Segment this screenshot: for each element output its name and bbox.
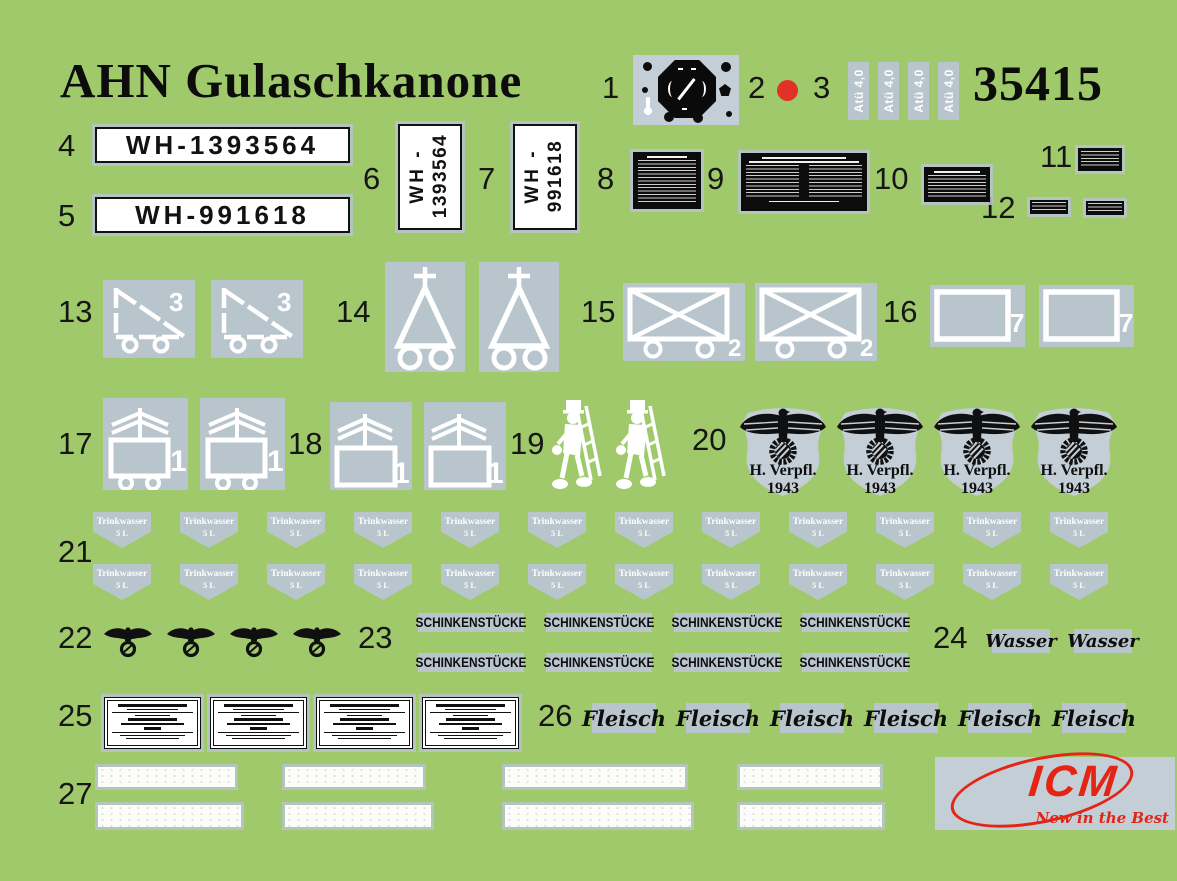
box-symbol-graphic: 1 xyxy=(424,402,506,490)
trinkwasser-text: Trinkwasser xyxy=(789,517,847,527)
trinkwasser-text: Trinkwasser xyxy=(441,569,499,579)
decal-chimney-sweep xyxy=(614,398,670,498)
card-text-line xyxy=(241,715,277,716)
decal-trinkwasser: Trinkwasser 5 L xyxy=(1050,512,1108,548)
plate-heading-line xyxy=(934,171,980,173)
card-text-line xyxy=(135,715,171,716)
trinkwasser-text: Trinkwasser xyxy=(267,517,325,527)
white-strip xyxy=(285,805,431,827)
decal-schinken: SCHINKENSTÜCKE xyxy=(674,653,780,672)
small-eagle-graphic xyxy=(229,624,279,658)
decal-group-kitchen-symbol xyxy=(385,262,559,372)
card-rule xyxy=(324,732,406,733)
item-number-7: 7 xyxy=(478,163,495,194)
card-text-line xyxy=(436,704,505,707)
decal-fleisch: Fleisch xyxy=(780,703,844,733)
decal-ration-card xyxy=(104,697,201,749)
plate-text-lines xyxy=(1032,202,1065,211)
shield-unit-text: H. Verpfl. xyxy=(738,462,828,480)
schinken-text: SCHINKENSTÜCKE xyxy=(544,615,655,630)
shield-unit-text: H. Verpfl. xyxy=(932,462,1022,480)
trinkwasser-volume: 5 L xyxy=(93,580,151,590)
decal-small-eagle xyxy=(292,624,342,658)
dial-arc-left xyxy=(668,81,677,97)
decal-trinkwasser: Trinkwasser 5 L xyxy=(963,564,1021,600)
atu-label: Atü 4,0 xyxy=(912,69,926,113)
decal-group-ration-card xyxy=(104,697,519,749)
item-number-14: 14 xyxy=(336,296,370,327)
item-number-22: 22 xyxy=(58,622,92,653)
symbol-figure: 1 xyxy=(393,457,410,490)
plate-text-lines xyxy=(638,160,696,202)
decal-schinken: SCHINKENSTÜCKE xyxy=(418,613,524,632)
decal-atu-strip: Atü 4,0 xyxy=(938,62,959,120)
card-text-line xyxy=(445,709,497,711)
trinkwasser-text: Trinkwasser xyxy=(615,569,673,579)
decal-trailer-symbol: 3 xyxy=(103,280,195,358)
decal-schinken: SCHINKENSTÜCKE xyxy=(802,653,908,672)
decal-kitchen-symbol xyxy=(479,262,559,372)
card-rule xyxy=(324,712,406,713)
card-number-line xyxy=(144,727,160,731)
decal-plate-horizontal-2: WH-991618 xyxy=(95,197,350,233)
decal-trinkwasser: Trinkwasser 5 L xyxy=(963,512,1021,548)
decal-group-crate-symbol: 2 2 xyxy=(623,283,877,361)
shield-unit-text: H. Verpfl. xyxy=(835,462,925,480)
item-number-25: 25 xyxy=(58,700,92,731)
card-inner-frame xyxy=(319,700,410,746)
fleisch-text: Fleisch xyxy=(958,706,1042,731)
panel-symbol-graphic: 7 xyxy=(930,285,1025,347)
trinkwasser-text: Trinkwasser xyxy=(963,569,1021,579)
decal-panel-symbol: 7 xyxy=(1039,285,1134,347)
card-number-line xyxy=(462,727,478,731)
decal-trinkwasser: Trinkwasser 5 L xyxy=(267,512,325,548)
atu-label: Atü 4,0 xyxy=(942,69,956,113)
decal-instruction-plate-12a xyxy=(1030,200,1068,214)
item-number-19: 19 xyxy=(510,428,544,459)
trinkwasser-text: Trinkwasser xyxy=(702,517,760,527)
plate-text-lines xyxy=(1088,203,1121,212)
decal-trinkwasser: Trinkwasser 5 L xyxy=(789,564,847,600)
trinkwasser-volume: 5 L xyxy=(615,580,673,590)
plate-text-rotated: WH - 991618 xyxy=(516,126,572,226)
plate-heading-line xyxy=(749,161,860,163)
decal-fleisch: Fleisch xyxy=(968,703,1032,733)
decal-trinkwasser: Trinkwasser 5 L xyxy=(441,512,499,548)
card-text-line xyxy=(127,709,179,711)
item-number-16: 16 xyxy=(883,296,917,327)
decal-pressure-gauge xyxy=(633,55,739,125)
small-eagle-graphic xyxy=(166,624,216,658)
trinkwasser-volume: 5 L xyxy=(1050,528,1108,538)
decal-eagle-shield: H. Verpfl. 1943 xyxy=(738,390,828,498)
decal-group-fleisch: Fleisch Fleisch Fleisch Fleisch Fleisch … xyxy=(592,703,1126,733)
card-text-line xyxy=(330,704,399,707)
decal-schinken: SCHINKENSTÜCKE xyxy=(546,613,652,632)
box-symbol-graphic: 1 xyxy=(330,402,412,490)
decal-trinkwasser: Trinkwasser 5 L xyxy=(180,512,238,548)
card-inner-frame xyxy=(425,700,516,746)
shield-unit-text: H. Verpfl. xyxy=(1029,462,1119,480)
crate-symbol-graphic: 2 xyxy=(755,283,877,361)
symbol-figure: 7 xyxy=(1119,308,1133,338)
trinkwasser-volume: 5 L xyxy=(267,580,325,590)
trinkwasser-volume: 5 L xyxy=(789,528,847,538)
symbol-figure: 1 xyxy=(267,445,284,478)
card-text-line xyxy=(121,723,183,724)
trinkwasser-volume: 5 L xyxy=(528,580,586,590)
card-inner-frame xyxy=(107,700,198,746)
decal-ration-card xyxy=(316,697,413,749)
symbol-figure: 3 xyxy=(169,287,183,317)
decal-box-symbol: 1 xyxy=(330,402,412,490)
card-title-line xyxy=(446,718,495,722)
trinkwasser-volume: 5 L xyxy=(615,528,673,538)
trinkwasser-text: Trinkwasser xyxy=(963,517,1021,527)
decal-trinkwasser: Trinkwasser 5 L xyxy=(180,564,238,600)
item-number-18: 18 xyxy=(288,428,322,459)
decal-instruction-plate-10 xyxy=(924,167,990,202)
trinkwasser-text: Trinkwasser xyxy=(93,569,151,579)
trinkwasser-volume: 5 L xyxy=(876,528,934,538)
card-text-line xyxy=(338,738,391,739)
item-number-5: 5 xyxy=(58,200,75,231)
decal-plate-vertical-2: WH - 991618 xyxy=(513,124,577,230)
item-number-1: 1 xyxy=(602,72,619,103)
decal-trinkwasser: Trinkwasser 5 L xyxy=(93,564,151,600)
trinkwasser-volume: 5 L xyxy=(93,528,151,538)
decal-schinken: SCHINKENSTÜCKE xyxy=(546,653,652,672)
decal-fleisch: Fleisch xyxy=(686,703,750,733)
card-text-line xyxy=(233,709,285,711)
decal-crate-symbol: 2 xyxy=(755,283,877,361)
decal-instruction-plate-12b xyxy=(1086,201,1124,215)
trinkwasser-volume: 5 L xyxy=(528,528,586,538)
decal-atu-strip: Atü 4,0 xyxy=(908,62,929,120)
trinkwasser-volume: 5 L xyxy=(702,528,760,538)
decal-trinkwasser: Trinkwasser 5 L xyxy=(702,564,760,600)
decal-group-eagle-shield: H. Verpfl. 1943 xyxy=(738,390,1119,498)
card-rule xyxy=(218,712,300,713)
decal-red-dot xyxy=(777,80,798,101)
trailer-symbol-graphic: 3 xyxy=(211,280,303,358)
decal-group-box-symbol: 1 1 xyxy=(330,402,506,490)
card-text-line xyxy=(339,709,391,711)
trinkwasser-text: Trinkwasser xyxy=(789,569,847,579)
white-strip xyxy=(740,767,880,787)
decal-group-trailer-symbol: 3 3 xyxy=(103,280,303,358)
trinkwasser-text: Trinkwasser xyxy=(528,517,586,527)
decal-eagle-shield: H. Verpfl. 1943 xyxy=(835,390,925,498)
small-eagle-graphic xyxy=(103,624,153,658)
panel-symbol-graphic: 7 xyxy=(1039,285,1134,347)
decal-trinkwasser: Trinkwasser 5 L xyxy=(702,512,760,548)
trinkwasser-text: Trinkwasser xyxy=(1050,569,1108,579)
trinkwasser-text: Trinkwasser xyxy=(1050,517,1108,527)
item-number-23: 23 xyxy=(358,622,392,653)
plate-heading-line xyxy=(647,156,686,158)
dial-tick xyxy=(682,108,687,110)
decal-box-symbol: 1 xyxy=(424,402,506,490)
white-strip xyxy=(98,805,241,827)
item-number-13: 13 xyxy=(58,296,92,327)
cart-symbol-graphic: 1 xyxy=(103,398,188,490)
trailer-symbol-graphic: 3 xyxy=(103,280,195,358)
item-number-20: 20 xyxy=(692,424,726,455)
fleisch-text: Fleisch xyxy=(770,706,854,731)
decal-ration-card xyxy=(210,697,307,749)
schinken-text: SCHINKENSTÜCKE xyxy=(544,655,655,670)
schinken-text: SCHINKENSTÜCKE xyxy=(416,615,527,630)
kitchen-symbol-graphic xyxy=(479,262,559,372)
plate-text-lines xyxy=(809,165,862,199)
trinkwasser-volume: 5 L xyxy=(354,528,412,538)
kit-number: 35415 xyxy=(973,54,1103,112)
decal-group-small-eagle xyxy=(103,624,342,658)
rivet-dot xyxy=(726,111,732,117)
chimney-sweep-graphic xyxy=(550,398,606,498)
card-text-line xyxy=(120,735,184,736)
decal-trinkwasser: Trinkwasser 5 L xyxy=(267,564,325,600)
decal-group-schinken-row-1: SCHINKENSTÜCKE SCHINKENSTÜCKE SCHINKENST… xyxy=(418,613,908,632)
rivet-dot xyxy=(693,113,703,123)
item-number-3: 3 xyxy=(813,72,830,103)
card-title-line xyxy=(340,718,389,722)
crate-symbol-graphic: 2 xyxy=(623,283,745,361)
decal-trinkwasser: Trinkwasser 5 L xyxy=(876,512,934,548)
decal-schinken: SCHINKENSTÜCKE xyxy=(674,613,780,632)
trinkwasser-volume: 5 L xyxy=(876,580,934,590)
decal-group-cart-symbol: 1 1 xyxy=(103,398,285,490)
decal-group-trinkwasser-row-1: Trinkwasser 5 L Trinkwasser 5 L Trinkwas… xyxy=(93,512,1108,548)
rivet-dot xyxy=(642,87,648,93)
plate-text: WH-1393564 xyxy=(126,130,319,161)
decal-group-schinken-row-2: SCHINKENSTÜCKE SCHINKENSTÜCKE SCHINKENST… xyxy=(418,653,908,672)
decal-instruction-plate-11 xyxy=(1078,148,1122,171)
trinkwasser-text: Trinkwasser xyxy=(876,569,934,579)
shield-year-text: 1943 xyxy=(1029,480,1119,498)
shield-year-text: 1943 xyxy=(932,480,1022,498)
decal-group-trinkwasser-row-2: Trinkwasser 5 L Trinkwasser 5 L Trinkwas… xyxy=(93,564,1108,600)
decal-group-panel-symbol: 7 7 xyxy=(930,285,1134,347)
plate-prefix: WH - xyxy=(522,126,544,226)
card-text-line xyxy=(118,704,187,707)
plate-text-lines xyxy=(746,165,799,199)
card-title-line xyxy=(234,718,283,722)
decal-trinkwasser: Trinkwasser 5 L xyxy=(1050,564,1108,600)
decal-trinkwasser: Trinkwasser 5 L xyxy=(615,564,673,600)
decal-wasser: Wasser xyxy=(1074,629,1132,653)
decal-group-atu: Atü 4,0 Atü 4,0 Atü 4,0 Atü 4,0 xyxy=(848,62,959,120)
white-strip xyxy=(285,767,423,787)
decal-instruction-plate-8 xyxy=(633,152,701,209)
plate-text-rotated: WH - 1393564 xyxy=(401,126,457,226)
decal-atu-strip: Atü 4,0 xyxy=(848,62,869,120)
plate-text-lines xyxy=(1081,151,1119,166)
decal-small-eagle xyxy=(229,624,279,658)
card-number-line xyxy=(356,727,372,731)
plate-columns xyxy=(746,165,862,199)
trinkwasser-volume: 5 L xyxy=(963,580,1021,590)
card-title-line xyxy=(128,718,177,722)
card-text-line xyxy=(453,715,489,716)
item-number-24: 24 xyxy=(933,622,967,653)
item-number-26: 26 xyxy=(538,700,572,731)
card-text-line xyxy=(333,723,395,724)
card-text-line xyxy=(347,715,383,716)
wasser-text: Wasser xyxy=(985,631,1057,652)
white-strip xyxy=(505,767,685,787)
item-number-4: 4 xyxy=(58,130,75,161)
schinken-text: SCHINKENSTÜCKE xyxy=(672,655,783,670)
trinkwasser-text: Trinkwasser xyxy=(180,517,238,527)
item-number-27: 27 xyxy=(58,778,92,809)
decal-trinkwasser: Trinkwasser 5 L xyxy=(528,564,586,600)
trinkwasser-text: Trinkwasser xyxy=(180,569,238,579)
plate-text-lines xyxy=(928,175,986,197)
small-eagle-graphic xyxy=(292,624,342,658)
item-number-6: 6 xyxy=(363,163,380,194)
trinkwasser-volume: 5 L xyxy=(963,528,1021,538)
logo-slogan-text: New in the Best xyxy=(1036,809,1169,827)
decal-trinkwasser: Trinkwasser 5 L xyxy=(354,564,412,600)
decal-fleisch: Fleisch xyxy=(1062,703,1126,733)
trinkwasser-volume: 5 L xyxy=(441,580,499,590)
plate-number: 991618 xyxy=(545,126,567,226)
trinkwasser-volume: 5 L xyxy=(789,580,847,590)
decal-trinkwasser: Trinkwasser 5 L xyxy=(789,512,847,548)
card-number-line xyxy=(250,727,266,731)
card-rule xyxy=(218,732,300,733)
trinkwasser-volume: 5 L xyxy=(180,528,238,538)
card-text-line xyxy=(227,723,289,724)
card-text-line xyxy=(126,738,179,739)
symbol-figure: 7 xyxy=(1010,308,1024,338)
dial-tick xyxy=(691,68,696,70)
trinkwasser-volume: 5 L xyxy=(354,580,412,590)
trinkwasser-text: Trinkwasser xyxy=(267,569,325,579)
decal-group-wasser: Wasser Wasser xyxy=(992,629,1132,653)
gauge-dial xyxy=(658,60,716,118)
plate-number: 1393564 xyxy=(430,126,452,226)
schinken-text: SCHINKENSTÜCKE xyxy=(416,655,527,670)
shield-year-text: 1943 xyxy=(835,480,925,498)
atu-label: Atü 4,0 xyxy=(882,69,896,113)
symbol-figure: 1 xyxy=(487,457,504,490)
decal-cart-symbol: 1 xyxy=(200,398,285,490)
rivet-dot xyxy=(721,62,731,72)
decal-fleisch: Fleisch xyxy=(592,703,656,733)
symbol-figure: 1 xyxy=(170,445,187,478)
wasser-text: Wasser xyxy=(1067,631,1139,652)
pentagon-mark xyxy=(719,84,731,96)
card-rule xyxy=(112,732,194,733)
item-number-15: 15 xyxy=(581,296,615,327)
decal-trinkwasser: Trinkwasser 5 L xyxy=(876,564,934,600)
decal-chimney-sweep xyxy=(550,398,606,498)
plate-heading-line xyxy=(769,201,838,203)
card-text-line xyxy=(439,723,501,724)
schinken-text: SCHINKENSTÜCKE xyxy=(800,615,911,630)
item-number-2: 2 xyxy=(748,72,765,103)
fleisch-text: Fleisch xyxy=(582,706,666,731)
card-rule xyxy=(430,732,512,733)
card-text-line xyxy=(444,738,497,739)
decal-schinken: SCHINKENSTÜCKE xyxy=(802,613,908,632)
decal-cart-symbol: 1 xyxy=(103,398,188,490)
decal-atu-strip: Atü 4,0 xyxy=(878,62,899,120)
trinkwasser-volume: 5 L xyxy=(1050,580,1108,590)
card-text-line xyxy=(438,735,502,736)
item-number-21: 21 xyxy=(58,536,92,567)
card-text-line xyxy=(232,738,285,739)
decal-eagle-shield: H. Verpfl. 1943 xyxy=(932,390,1022,498)
decal-trinkwasser: Trinkwasser 5 L xyxy=(441,564,499,600)
decal-wasser: Wasser xyxy=(992,629,1050,653)
item-number-9: 9 xyxy=(707,163,724,194)
trinkwasser-text: Trinkwasser xyxy=(528,569,586,579)
gauge-needle xyxy=(677,78,695,100)
dial-arc-right xyxy=(697,81,706,97)
trinkwasser-text: Trinkwasser xyxy=(354,517,412,527)
decal-trinkwasser: Trinkwasser 5 L xyxy=(93,512,151,548)
symbol-figure: 3 xyxy=(277,287,291,317)
decal-panel-symbol: 7 xyxy=(930,285,1025,347)
card-inner-frame xyxy=(213,700,304,746)
decal-trinkwasser: Trinkwasser 5 L xyxy=(528,512,586,548)
decal-schinken: SCHINKENSTÜCKE xyxy=(418,653,524,672)
trinkwasser-text: Trinkwasser xyxy=(354,569,412,579)
item-number-10: 10 xyxy=(874,163,908,194)
trinkwasser-volume: 5 L xyxy=(267,528,325,538)
shield-year-text: 1943 xyxy=(738,480,828,498)
decal-plate-vertical-1: WH - 1393564 xyxy=(398,124,462,230)
trinkwasser-text: Trinkwasser xyxy=(876,517,934,527)
rivet-dot xyxy=(664,112,674,122)
icm-logo: ICM New in the Best xyxy=(935,757,1175,830)
atu-label: Atü 4,0 xyxy=(852,69,866,113)
trinkwasser-text: Trinkwasser xyxy=(93,517,151,527)
plate-heading-line xyxy=(762,157,845,159)
decal-ration-card xyxy=(422,697,519,749)
schinken-text: SCHINKENSTÜCKE xyxy=(672,615,783,630)
rivet-dot xyxy=(643,62,652,71)
item-number-17: 17 xyxy=(58,428,92,459)
decal-small-eagle xyxy=(166,624,216,658)
dial-tick xyxy=(678,68,683,70)
decal-trinkwasser: Trinkwasser 5 L xyxy=(354,512,412,548)
card-text-line xyxy=(226,735,290,736)
trinkwasser-text: Trinkwasser xyxy=(702,569,760,579)
decal-small-eagle xyxy=(103,624,153,658)
decal-plate-horizontal-1: WH-1393564 xyxy=(95,127,350,163)
trinkwasser-text: Trinkwasser xyxy=(615,517,673,527)
decal-sheet: AHN Gulaschkanone 35415 1 2 3 4 5 6 7 8 … xyxy=(0,0,1177,881)
chimney-sweep-graphic xyxy=(614,398,670,498)
trinkwasser-volume: 5 L xyxy=(441,528,499,538)
schinken-text: SCHINKENSTÜCKE xyxy=(800,655,911,670)
thermometer-mark xyxy=(646,97,650,109)
decal-fleisch: Fleisch xyxy=(874,703,938,733)
item-number-8: 8 xyxy=(597,163,614,194)
decal-trinkwasser: Trinkwasser 5 L xyxy=(615,512,673,548)
decal-group-chimney-sweep xyxy=(550,398,670,498)
card-rule xyxy=(430,712,512,713)
cart-symbol-graphic: 1 xyxy=(200,398,285,490)
plate-text: WH-991618 xyxy=(135,200,310,231)
kitchen-symbol-graphic xyxy=(385,262,465,372)
